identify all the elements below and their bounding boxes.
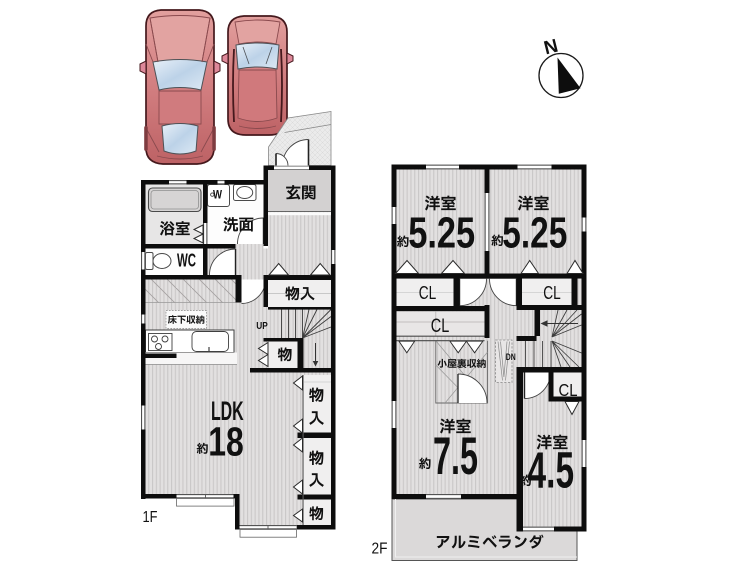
svg-text:2F: 2F bbox=[372, 541, 388, 558]
svg-text:18: 18 bbox=[208, 418, 244, 464]
svg-text:DN: DN bbox=[506, 352, 516, 362]
svg-text:CL: CL bbox=[419, 282, 437, 303]
svg-text:CL: CL bbox=[559, 380, 578, 400]
svg-text:4.5: 4.5 bbox=[528, 441, 575, 498]
svg-text:1F: 1F bbox=[143, 509, 158, 526]
svg-text:W: W bbox=[213, 190, 222, 202]
svg-text:CL: CL bbox=[543, 282, 561, 303]
svg-text:5.25: 5.25 bbox=[502, 209, 567, 258]
svg-text:WC: WC bbox=[177, 250, 196, 271]
svg-text:5.25: 5.25 bbox=[408, 209, 475, 258]
svg-text:7.5: 7.5 bbox=[433, 427, 478, 486]
svg-text:CL: CL bbox=[431, 316, 450, 337]
svg-text:N: N bbox=[542, 36, 560, 60]
svg-text:UP: UP bbox=[256, 321, 268, 332]
